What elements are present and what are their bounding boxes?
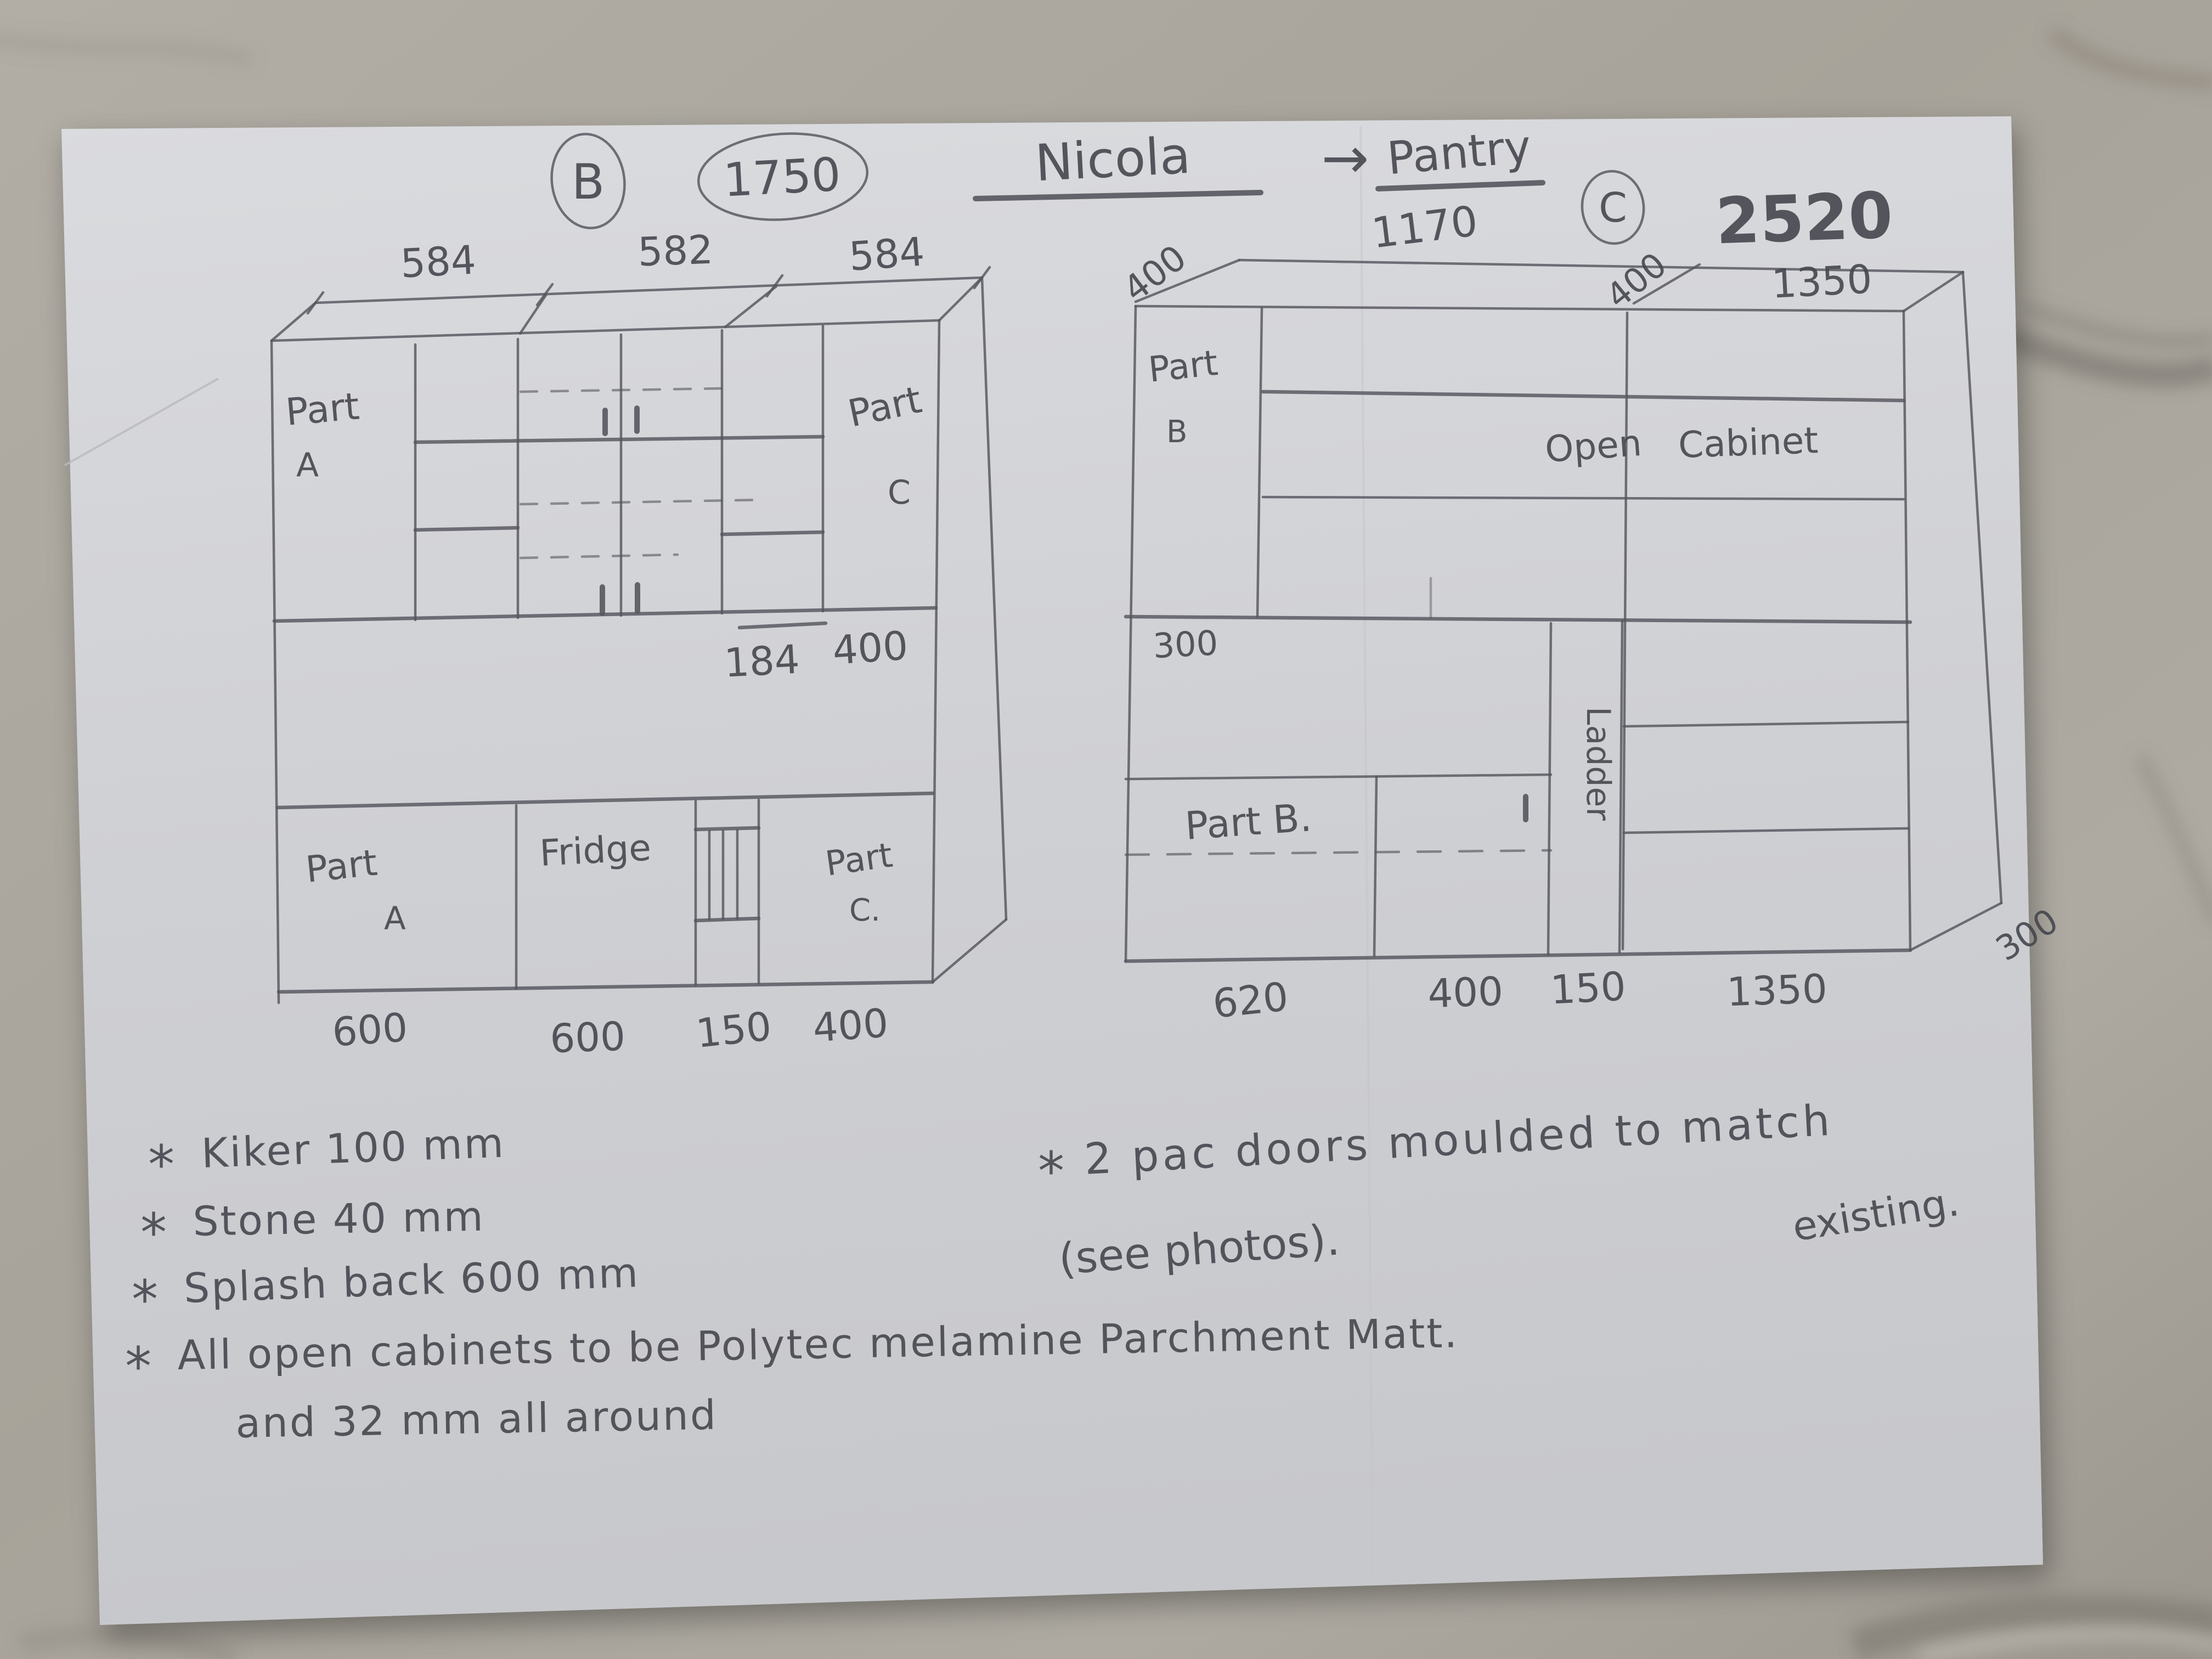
dim-pantry-base-1: 620 (1211, 973, 1290, 1027)
bullet-icon: * (148, 1134, 174, 1195)
open-cabinet-label-2: Cabinet (1678, 419, 1819, 466)
part-c-upper-letter: C (888, 473, 911, 512)
dim-pantry-top-right: 1350 (1770, 256, 1873, 307)
dim-base-4: 400 (811, 1000, 890, 1051)
arrow-icon: → (1321, 125, 1369, 191)
part-c-base-letter: C. (849, 893, 881, 928)
sheet-c-label: C (1599, 184, 1627, 232)
open-cabinet-label-1: Open (1544, 422, 1643, 471)
fridge-label: Fridge (539, 826, 652, 874)
part-b-lower-label: Part B. (1183, 795, 1313, 849)
ladder-label: Ladder (1579, 707, 1617, 821)
dim-step-1: 184 (723, 636, 801, 686)
bullet-icon: * (1038, 1141, 1064, 1202)
part-a-upper-label: Part (284, 385, 362, 435)
dim-base-2: 600 (549, 1013, 626, 1062)
dim-top-2: 582 (637, 227, 714, 275)
bullet-icon: * (140, 1202, 167, 1263)
note-32mm: and 32 mm all around (235, 1392, 718, 1447)
dim-top-1: 584 (399, 236, 477, 286)
bullet-icon: * (132, 1269, 158, 1330)
dim-base-3: 150 (694, 1003, 774, 1057)
part-b-upper-label: Part (1147, 343, 1220, 391)
part-a-upper-letter: A (296, 446, 319, 484)
sheet-b-label: B (572, 154, 605, 210)
note-stone: Stone 40 mm (193, 1193, 485, 1245)
dim-pantry-base-2: 400 (1427, 968, 1504, 1017)
bullet-icon: * (125, 1336, 151, 1397)
dim-base-1: 600 (331, 1004, 409, 1055)
photo-of-sketch: B 1750 Nicola → Pantry C 2520 (0, 0, 2212, 1659)
dim-bench-height: 300 (1152, 623, 1219, 666)
dim-pantry-base-3: 150 (1549, 963, 1627, 1013)
part-a-base-label: Part (304, 842, 380, 891)
dim-pantry-base-4: 1350 (1726, 966, 1828, 1015)
dim-top-3: 584 (848, 228, 926, 279)
part-b-upper-letter: B (1166, 414, 1187, 450)
pantry-total-width: 2520 (1714, 178, 1894, 258)
part-a-base-letter: A (384, 900, 406, 937)
client-name: Nicola (1034, 126, 1192, 193)
cabinet-b-total-width: 1750 (722, 148, 842, 207)
dim-step-2: 400 (831, 622, 910, 673)
